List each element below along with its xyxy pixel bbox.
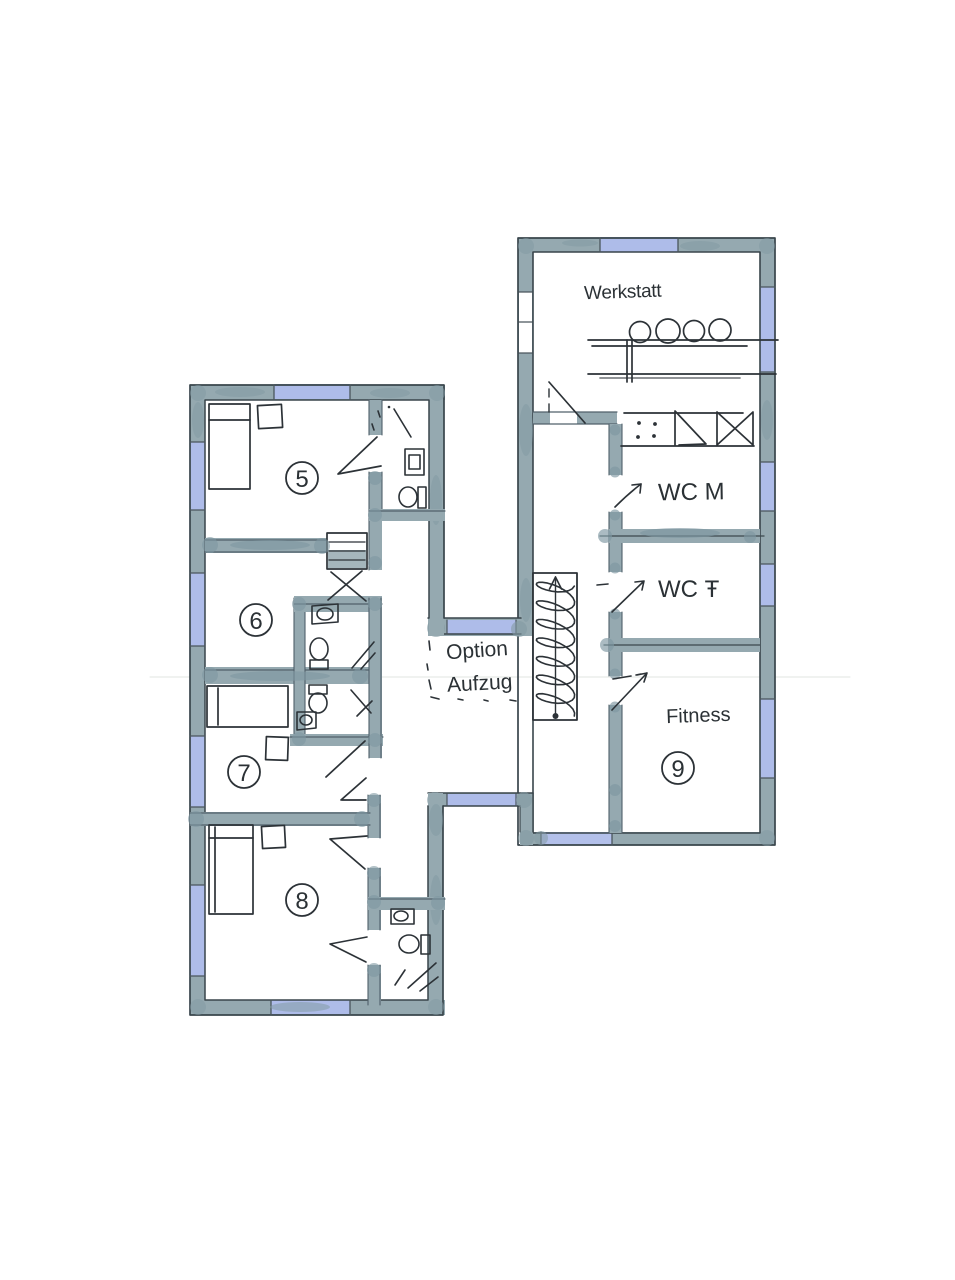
svg-text:Aufzug: Aufzug (446, 670, 513, 696)
svg-text:5: 5 (295, 466, 308, 493)
svg-text:WC M: WC M (658, 478, 725, 506)
svg-text:6: 6 (249, 608, 262, 635)
svg-text:8: 8 (295, 888, 308, 915)
svg-text:7: 7 (237, 760, 250, 787)
svg-text:Fitness: Fitness (666, 704, 731, 728)
svg-text:WC Ŧ: WC Ŧ (658, 576, 720, 603)
svg-text:Option: Option (445, 637, 508, 664)
svg-text:Werkstatt: Werkstatt (584, 281, 663, 305)
svg-text:9: 9 (671, 756, 684, 783)
